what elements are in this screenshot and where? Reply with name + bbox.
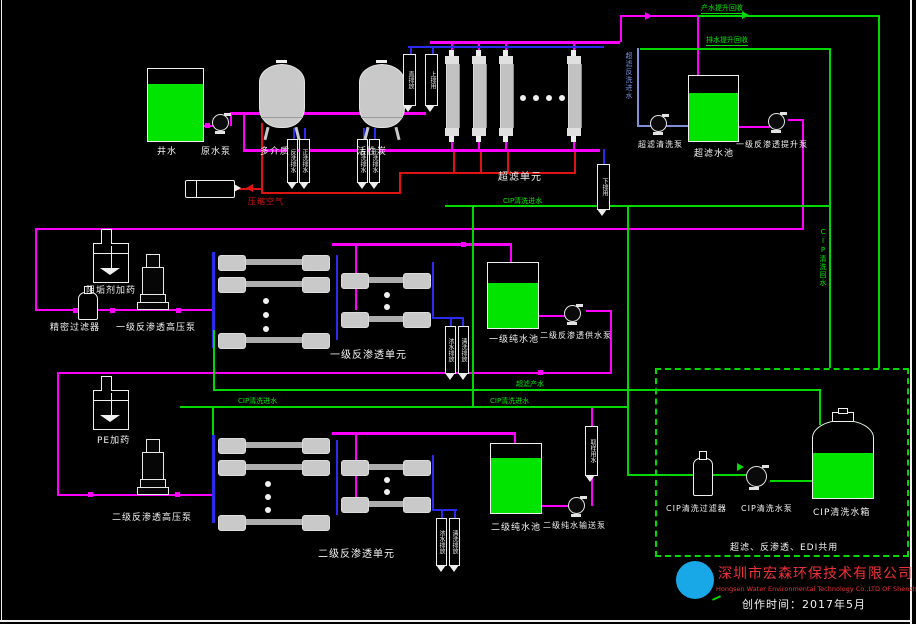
label-uf-clean-pump: 超滤清洗泵 — [638, 139, 683, 150]
pipe-blue — [336, 440, 338, 515]
drain-tag: 正洗排水 — [299, 139, 310, 183]
pipe-red — [574, 152, 576, 172]
frame-left — [1, 0, 2, 622]
drain-tag: 清洗排放 — [458, 326, 469, 374]
antiscalant-dosing-tank — [93, 243, 129, 283]
air-compressor — [185, 180, 235, 198]
frame-right — [910, 0, 912, 624]
ellipsis-dot — [533, 95, 539, 101]
creation-date: 创作时间：2017年5月 — [742, 596, 866, 612]
label-ro2-transfer-pump: 二级纯水输送泵 — [543, 520, 606, 531]
label-uf-unit: 超滤单元 — [498, 168, 542, 183]
ro-vessel — [218, 333, 330, 347]
label-raw-pump: 原水泵 — [201, 144, 231, 157]
pipe-cip — [472, 205, 474, 406]
ellipsis-dot — [263, 312, 269, 318]
label-product-return: 产水提升回收 — [701, 3, 743, 14]
ro-vessel — [341, 497, 431, 511]
pipe-magenta — [35, 309, 212, 311]
well-water-tank — [147, 68, 204, 142]
label-uf-backwash: 超滤反洗进水 — [624, 52, 634, 100]
ellipsis-dot — [384, 292, 390, 298]
pipe-magenta — [537, 315, 566, 317]
pipe-magenta — [35, 228, 37, 311]
pipe-blue — [432, 262, 434, 319]
pipe-cip — [627, 205, 629, 476]
uf-water-tank — [688, 75, 739, 142]
pipe-cip — [878, 15, 880, 368]
valve — [176, 308, 181, 313]
uf-clean-pump-icon — [650, 115, 667, 132]
pipe-magenta — [57, 372, 612, 374]
raw-water-pump-icon — [212, 114, 229, 131]
multimedia-filter-vessel — [256, 64, 308, 140]
pipe-magenta — [451, 142, 453, 150]
frame-bottom — [0, 620, 912, 622]
pipe-cip — [212, 406, 214, 435]
uf-membrane-column — [497, 50, 515, 142]
label-drain-return: 排水提升回收 — [706, 35, 748, 46]
pipe-blue — [450, 317, 452, 326]
label-pe-dosing: PE加药 — [97, 433, 130, 446]
valve-top — [276, 60, 287, 63]
label-ro2-unit: 二级反渗透单元 — [318, 545, 395, 560]
drain-tag: 下排用 — [597, 164, 610, 210]
pipe-magenta — [802, 119, 804, 229]
valve — [88, 492, 93, 497]
pipe-cip — [829, 48, 831, 368]
pipe-magenta — [57, 372, 59, 495]
company-logo — [676, 561, 714, 599]
ro2-pure-water-tank — [490, 443, 542, 514]
pe-dosing-tank — [93, 390, 129, 430]
ro-vessel — [218, 460, 330, 474]
ellipsis-dot — [559, 95, 565, 101]
valve-top — [376, 60, 387, 63]
ellipsis-dot — [263, 298, 269, 304]
label-cip-inlet-ro1: CIP清洗进水 — [238, 396, 277, 407]
pipe-magenta — [332, 432, 515, 435]
label-cip-return: CIP清洗回水 — [818, 228, 828, 287]
valve — [461, 242, 466, 247]
drain-tag: 上排用 — [425, 54, 438, 106]
label-cip-inlet-uf: CIP清洗进水 — [503, 196, 542, 207]
pipe-magenta — [478, 142, 480, 150]
label-antiscalant: 阻垢剂加药 — [86, 283, 136, 296]
label-ro1-tank: 一级纯水池 — [489, 332, 539, 345]
label-uf-tank: 超滤水池 — [694, 146, 734, 159]
precision-filter — [78, 292, 98, 320]
label-ro1-hp-pump: 一级反渗透高压泵 — [116, 320, 196, 333]
ro1-pure-water-tank — [487, 262, 539, 329]
ellipsis-dot — [546, 95, 552, 101]
cip-water-tank — [812, 420, 874, 499]
pipe-red — [480, 152, 482, 172]
pipe-magenta — [57, 494, 212, 496]
tank-headspace — [148, 69, 203, 84]
activated-carbon-vessel — [356, 64, 408, 140]
ellipsis-dot — [265, 507, 271, 513]
label-ro2-hp-pump: 二级反渗透高压泵 — [112, 510, 192, 523]
pipe-magenta — [573, 142, 575, 150]
ro-vessel — [218, 515, 330, 529]
pipe-cip — [640, 48, 830, 50]
pipe-magenta — [35, 228, 804, 230]
pipe-blue — [212, 435, 215, 523]
label-cip-inlet-ro2: CIP清洗进水 — [490, 396, 529, 407]
label-ro2-tank: 二级纯水池 — [491, 520, 541, 533]
valve — [110, 308, 115, 313]
pipe-magenta — [430, 41, 620, 44]
ro-vessel — [218, 277, 330, 291]
label-ro2-feed-pump: 二级反渗透供水泵 — [540, 330, 612, 341]
pipe-blue — [441, 509, 443, 518]
pipe-blue — [454, 509, 456, 518]
ro-vessel — [218, 438, 330, 452]
pipe-blue — [432, 455, 434, 511]
pipe-blue — [432, 317, 463, 319]
dosing-stand-pipe — [101, 229, 112, 244]
pipe-magenta — [586, 310, 612, 312]
cip-filter — [693, 458, 713, 496]
pipe-blue — [603, 149, 605, 164]
ro-vessel — [341, 460, 431, 474]
pipe-magenta — [620, 15, 622, 42]
label-multimedia: 多介质 — [260, 144, 290, 157]
label-cip-tank: CIP清洗水箱 — [813, 505, 870, 518]
flow-arrow — [645, 12, 652, 20]
label-cip-shared: 超滤、反渗透、EDI共用 — [730, 540, 838, 553]
pipe-blue — [336, 255, 338, 340]
ellipsis-dot — [263, 326, 269, 332]
label-well-water: 井水 — [157, 144, 177, 157]
label-uf-product-line: 超滤产水 — [516, 379, 544, 390]
ellipsis-dot — [384, 477, 390, 483]
label-cip-pump: CIP清洗水泵 — [741, 503, 793, 514]
pipe-magenta — [505, 142, 507, 150]
pipe-magenta — [510, 243, 512, 262]
ro-vessel — [341, 312, 431, 326]
valve — [205, 123, 210, 128]
pipe-magenta — [736, 126, 770, 128]
pipe-magenta — [610, 310, 612, 373]
ellipsis-dot — [384, 489, 390, 495]
dosing-stand-pipe — [101, 376, 112, 391]
ellipsis-dot — [384, 304, 390, 310]
ellipsis-dot — [265, 494, 271, 500]
pipe-magenta — [620, 15, 698, 17]
valve — [175, 492, 180, 497]
pipe-magenta — [697, 15, 699, 75]
pipe-red — [399, 172, 401, 194]
cip-pump-arrow — [737, 463, 744, 471]
drain-tag: 浓水排放 — [436, 518, 447, 566]
ellipsis-dot — [265, 481, 271, 487]
drain-tag: 清洗排放 — [449, 518, 460, 566]
pipe-blue — [408, 46, 604, 48]
pipe-magenta — [243, 112, 245, 149]
pipe-red — [453, 152, 455, 172]
flow-arrow — [742, 11, 749, 19]
uf-membrane-column — [565, 50, 583, 142]
ellipsis-dot — [520, 95, 526, 101]
cip-filter-cap — [699, 451, 707, 460]
ro2-feed-pump-icon — [564, 305, 581, 322]
drain-tag: 直排放 — [403, 54, 416, 106]
pipe-red — [261, 192, 401, 194]
cip-tank-vent — [838, 408, 848, 414]
label-ro1-lift-pump: 一级反渗透提升泵 — [736, 139, 808, 150]
pipe-blue — [462, 317, 464, 326]
label-activated-carbon: 活性炭 — [357, 144, 387, 157]
pipe-magenta — [332, 243, 511, 246]
pid-drawing: 直排放 上排用 反洗排水 正洗排水 反洗排水 正洗排水 下排用 浓水排放 清洗排… — [0, 0, 916, 624]
ro-vessel — [341, 273, 431, 287]
drain-tag: 浓水排放 — [445, 326, 456, 374]
pipe-backwash — [637, 48, 639, 126]
logo-sprout — [712, 595, 721, 601]
company-name-cn: 深圳市宏森环保技术有限公司 — [718, 563, 913, 583]
uf-membrane-column — [470, 50, 488, 142]
ro1-lift-pump-icon — [768, 113, 785, 130]
pipe-cip — [698, 15, 880, 17]
valve — [538, 370, 543, 375]
label-compressed-air: 压缩空气 — [248, 196, 284, 207]
label-ro1-unit: 一级反渗透单元 — [330, 346, 407, 361]
uf-membrane-column — [443, 50, 461, 142]
company-name-en: Hongsen Water Environmental Technology C… — [716, 585, 916, 593]
sample-tag: 取样用水 — [585, 426, 598, 476]
cip-pump-icon — [746, 466, 767, 487]
air-arrow — [246, 184, 253, 192]
label-precision-filter: 精密过滤器 — [50, 320, 100, 333]
pipe-cip — [213, 330, 215, 390]
ro-vessel — [218, 255, 330, 269]
pipe-magenta — [540, 505, 570, 507]
pipe-red — [399, 172, 576, 174]
ro2-transfer-pump-icon — [568, 497, 585, 514]
label-cip-filter: CIP清洗过滤器 — [666, 503, 727, 514]
